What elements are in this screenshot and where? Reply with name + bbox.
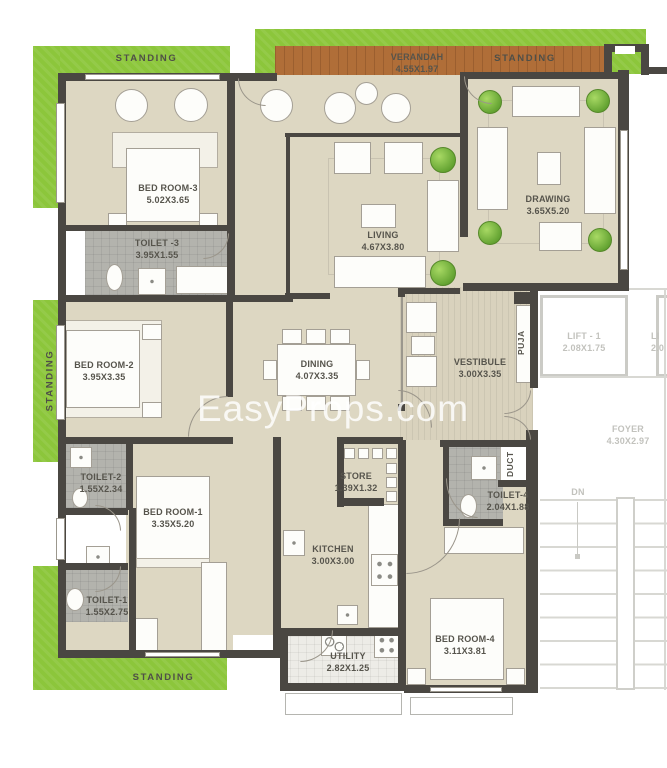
room-dims: 2.0 bbox=[651, 343, 667, 355]
room-label-toilet4: TOILET-4 2.04X1.88 bbox=[458, 490, 558, 513]
room-dims: 4.30X2.97 bbox=[578, 436, 667, 448]
room-name: FOYER bbox=[578, 424, 667, 436]
standing-label-top-left: STANDING bbox=[63, 53, 230, 64]
wall bbox=[280, 628, 288, 690]
toilet-shower-icon bbox=[471, 456, 497, 480]
wall bbox=[58, 295, 293, 302]
room-name: LIVING bbox=[328, 230, 438, 242]
drawing-sofa-bottom bbox=[539, 222, 582, 251]
wall bbox=[58, 225, 233, 231]
room-name: TOILET -3 bbox=[107, 238, 207, 250]
wall bbox=[526, 430, 538, 693]
room-label-bedroom2: BED ROOM-2 3.95X3.35 bbox=[49, 360, 159, 383]
verandah-round-chair-3 bbox=[381, 93, 411, 123]
wall-post bbox=[398, 290, 405, 297]
room-label-utility: UTILITY 2.82X1.25 bbox=[298, 651, 398, 674]
dining-chair bbox=[306, 329, 326, 344]
wall bbox=[338, 498, 384, 506]
room-dims: 2.82X1.25 bbox=[298, 663, 398, 675]
window bbox=[56, 103, 65, 203]
room-name: TOILET-2 bbox=[51, 472, 151, 484]
room-name: BED ROOM-1 bbox=[118, 507, 228, 519]
stair-direction-dot bbox=[575, 554, 580, 559]
dn-text: DN bbox=[566, 487, 590, 499]
window bbox=[56, 518, 65, 560]
room-name: TOILET-1 bbox=[57, 595, 157, 607]
dining-chair bbox=[282, 329, 302, 344]
foyer-label: FOYER 4.30X2.97 bbox=[578, 424, 667, 447]
toilet-vanity-icon bbox=[138, 268, 166, 295]
plant-icon bbox=[478, 221, 502, 245]
bed4-nightstand-right bbox=[506, 668, 525, 685]
room-dims: 5.02X3.65 bbox=[113, 195, 223, 207]
room-dims: 4.67X3.80 bbox=[328, 242, 438, 254]
bed3-round-chair-1 bbox=[115, 89, 148, 122]
room-name: LIFT - 1 bbox=[540, 331, 628, 343]
lobby-boundary-line bbox=[623, 288, 667, 290]
standing-label-bottom: STANDING bbox=[100, 672, 227, 683]
wall bbox=[440, 440, 538, 447]
room-dims: 3.35X5.20 bbox=[118, 519, 228, 531]
wall bbox=[398, 288, 460, 294]
room-name: VERANDAH bbox=[362, 52, 472, 64]
vestibule-chair-1 bbox=[406, 302, 437, 333]
plant-icon bbox=[430, 147, 456, 173]
room-name: BED ROOM-2 bbox=[49, 360, 159, 372]
standing-label-top-right: STANDING bbox=[487, 53, 563, 64]
wall bbox=[649, 67, 667, 74]
bed1-bench bbox=[136, 558, 210, 568]
wall bbox=[460, 72, 468, 237]
room-dims: 2.04X1.88 bbox=[458, 502, 558, 514]
room-label-puja: PUJA bbox=[516, 318, 532, 368]
stair-divider bbox=[616, 497, 635, 690]
floor-plan: STANDING STANDING STANDING STANDING BED … bbox=[0, 0, 667, 768]
watermark: EasyProps.com bbox=[118, 388, 548, 430]
room-label-kitchen: KITCHEN 3.00X3.00 bbox=[278, 544, 388, 567]
stair-direction-line bbox=[577, 502, 578, 554]
room-label-bedroom1: BED ROOM-1 3.35X5.20 bbox=[118, 507, 228, 530]
vestibule-table bbox=[411, 336, 435, 355]
room-dims: 1.55X2.75 bbox=[57, 607, 157, 619]
living-armchair-2 bbox=[384, 142, 423, 174]
plant-icon bbox=[430, 260, 456, 286]
room-label-toilet2: TOILET-2 1.55X2.34 bbox=[51, 472, 151, 495]
room-label-dining: DINING 4.07X3.35 bbox=[262, 359, 372, 382]
room-name: LI bbox=[651, 331, 667, 343]
room-name: UTILITY bbox=[298, 651, 398, 663]
room-dims: 3.11X3.81 bbox=[410, 646, 520, 658]
wall bbox=[641, 44, 649, 75]
bed2-nightstand-top bbox=[142, 324, 162, 340]
bed4-ledge bbox=[410, 697, 513, 715]
room-dims: 3.95X1.55 bbox=[107, 250, 207, 262]
room-label-verandah: VERANDAH 4.55X1.97 bbox=[362, 52, 472, 75]
toilet-vanity-icon bbox=[70, 447, 92, 468]
window bbox=[620, 130, 628, 270]
room-name: TOILET-4 bbox=[458, 490, 558, 502]
drawing-sofa-top bbox=[512, 86, 580, 117]
room-dims: 4.07X3.35 bbox=[262, 371, 372, 383]
utility-ledge bbox=[285, 693, 402, 715]
drawing-table bbox=[537, 152, 561, 185]
wall bbox=[285, 133, 463, 137]
wall bbox=[463, 283, 623, 291]
bed1-wardrobe bbox=[201, 562, 227, 652]
room-name: STORE bbox=[306, 471, 406, 483]
wall bbox=[227, 231, 235, 295]
room-label-toilet3: TOILET -3 3.95X1.55 bbox=[107, 238, 207, 261]
store-shelf bbox=[344, 448, 355, 459]
room-dims: 3.65X5.20 bbox=[493, 206, 603, 218]
room-name: BED ROOM-3 bbox=[113, 183, 223, 195]
verandah-round-table bbox=[355, 82, 378, 105]
store-shelf bbox=[386, 448, 397, 459]
wall bbox=[280, 683, 404, 691]
room-label-duct: DUCT bbox=[505, 444, 523, 484]
room-name: DINING bbox=[262, 359, 372, 371]
bed3-round-chair-2 bbox=[174, 88, 208, 122]
lift2-partial-label: LI 2.0 bbox=[651, 331, 667, 354]
living-sofa-bottom bbox=[334, 256, 426, 288]
room-dims: 1.39X1.32 bbox=[306, 483, 406, 495]
wall bbox=[286, 135, 290, 295]
wall bbox=[226, 295, 233, 397]
room-dims: 2.08X1.75 bbox=[540, 343, 628, 355]
kitchen-sink-icon bbox=[337, 605, 358, 625]
room-dims: 3.00X3.00 bbox=[278, 556, 388, 568]
room-name: BED ROOM-4 bbox=[410, 634, 520, 646]
room-label-store: STORE 1.39X1.32 bbox=[306, 471, 406, 494]
window bbox=[145, 652, 220, 657]
window bbox=[430, 687, 502, 692]
room-label-bedroom4: BED ROOM-4 3.11X3.81 bbox=[410, 634, 520, 657]
dining-chair bbox=[330, 329, 350, 344]
verandah-round-chair-2 bbox=[324, 92, 356, 124]
room-name: DRAWING bbox=[493, 194, 603, 206]
wall bbox=[285, 293, 330, 299]
toilet3-counter bbox=[176, 266, 230, 294]
room-label-toilet1: TOILET-1 1.55X2.75 bbox=[57, 595, 157, 618]
room-dims: 3.95X3.35 bbox=[49, 372, 159, 384]
living-coffee-table bbox=[361, 204, 396, 228]
plant-icon bbox=[588, 228, 612, 252]
room-name: KITCHEN bbox=[278, 544, 388, 556]
room-dims: 1.55X2.34 bbox=[51, 484, 151, 496]
room-label-bedroom3: BED ROOM-3 5.02X3.65 bbox=[113, 183, 223, 206]
room-dims: 3.00X3.35 bbox=[425, 369, 535, 381]
wall bbox=[227, 73, 235, 233]
room-dims: 4.55X1.97 bbox=[362, 64, 472, 76]
toilet-wc-icon bbox=[106, 264, 123, 291]
plant-icon bbox=[586, 89, 610, 113]
store-shelf bbox=[358, 448, 369, 459]
room-label-drawing: DRAWING 3.65X5.20 bbox=[493, 194, 603, 217]
store-shelf bbox=[372, 448, 383, 459]
window bbox=[85, 74, 220, 80]
living-armchair-1 bbox=[334, 142, 371, 174]
notch-recess bbox=[615, 46, 635, 54]
wall bbox=[604, 44, 612, 75]
bed4-nightstand-left bbox=[407, 668, 426, 685]
foyer-boundary-line bbox=[540, 376, 667, 378]
wall bbox=[337, 437, 403, 444]
wall bbox=[58, 437, 233, 444]
room-label-living: LIVING 4.67X3.80 bbox=[328, 230, 438, 253]
toilet3-vanity-area bbox=[64, 231, 86, 295]
stair-dn-label: DN bbox=[566, 487, 590, 499]
staircase bbox=[540, 499, 667, 691]
lift1-label: LIFT - 1 2.08X1.75 bbox=[540, 331, 628, 354]
